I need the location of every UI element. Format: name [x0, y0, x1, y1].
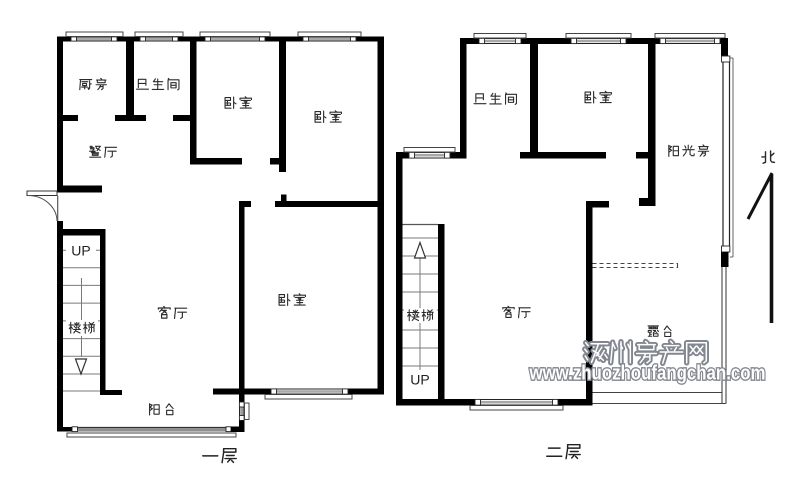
- svg-text:UP: UP: [410, 372, 429, 388]
- svg-text:www.zhuozhoufangchan.com: www.zhuozhoufangchan.com: [529, 363, 766, 385]
- svg-text:UP: UP: [71, 243, 90, 259]
